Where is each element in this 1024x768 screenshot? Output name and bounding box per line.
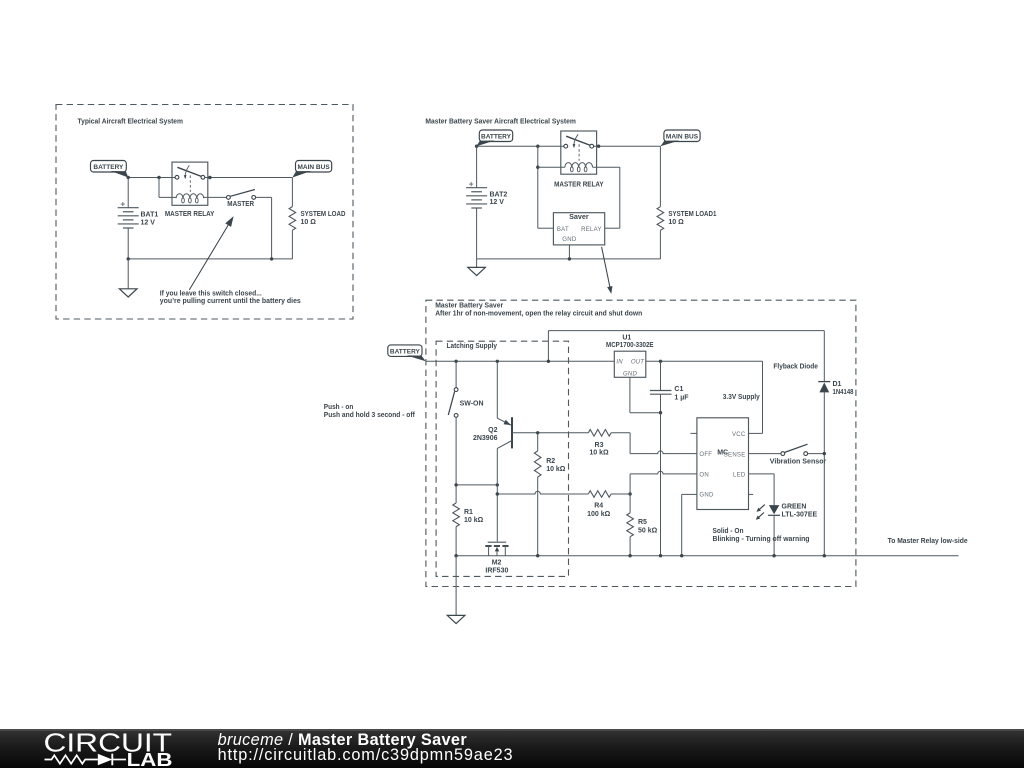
svg-text:MASTER RELAY: MASTER RELAY — [554, 181, 604, 188]
svg-text:10 kΩ: 10 kΩ — [546, 466, 566, 473]
svg-text:LED: LED — [733, 472, 746, 478]
svg-text:GREEN: GREEN — [782, 503, 807, 510]
svg-text:Push and hold 3 second - off: Push and hold 3 second - off — [324, 412, 416, 419]
svg-text:Latching Supply: Latching Supply — [447, 343, 498, 350]
svg-text:R4: R4 — [594, 503, 603, 510]
svg-text:MASTER RELAY: MASTER RELAY — [165, 211, 215, 218]
svg-text:SYSTEM LOAD1: SYSTEM LOAD1 — [668, 211, 716, 218]
svg-text:Typical Aircraft Electrical Sy: Typical Aircraft Electrical System — [78, 119, 184, 126]
svg-text:you’re pulling current until t: you’re pulling current until the battery… — [160, 298, 301, 305]
svg-text:50 kΩ: 50 kΩ — [638, 528, 658, 535]
svg-text:10 Ω: 10 Ω — [301, 219, 317, 226]
svg-text:12 V: 12 V — [141, 220, 156, 227]
svg-text:BATTERY: BATTERY — [481, 134, 512, 141]
svg-text:IN: IN — [616, 359, 623, 365]
svg-text:R2: R2 — [546, 458, 555, 465]
svg-text:After 1hr of non-movement, ope: After 1hr of non-movement, open the rela… — [435, 311, 642, 318]
svg-text:BATTERY: BATTERY — [390, 349, 421, 356]
svg-text:M2: M2 — [492, 560, 502, 567]
svg-text:Vibration Sensor: Vibration Sensor — [770, 459, 827, 466]
svg-text:Push - on: Push - on — [324, 404, 354, 411]
svg-text:1N4148: 1N4148 — [833, 389, 854, 396]
svg-text:3.3V Supply: 3.3V Supply — [723, 394, 760, 401]
svg-text:GND: GND — [699, 493, 714, 499]
svg-text:10 kΩ: 10 kΩ — [464, 517, 484, 524]
svg-text:OUT: OUT — [631, 359, 645, 365]
svg-text:BAT1: BAT1 — [141, 212, 159, 219]
svg-text:R1: R1 — [464, 509, 473, 516]
svg-text:RELAY: RELAY — [581, 227, 602, 233]
svg-text:Q2: Q2 — [488, 427, 497, 434]
svg-text:If you leave this switch close: If you leave this switch closed... — [160, 290, 262, 297]
svg-text:U1: U1 — [622, 334, 631, 341]
svg-text:R5: R5 — [638, 519, 647, 526]
svg-text:OFF: OFF — [699, 452, 712, 458]
svg-text:IRF530: IRF530 — [485, 567, 508, 574]
svg-text:D1: D1 — [833, 381, 842, 388]
svg-text:Saver: Saver — [569, 212, 589, 221]
svg-text:BAT2: BAT2 — [490, 191, 508, 198]
svg-text:ON: ON — [699, 472, 709, 478]
svg-text:MAIN BUS: MAIN BUS — [666, 134, 699, 141]
svg-text:Master Battery Saver: Master Battery Saver — [435, 303, 503, 310]
svg-text:10 Ω: 10 Ω — [668, 219, 684, 226]
svg-text:Master Battery Saver Aircraft: Master Battery Saver Aircraft Electrical… — [425, 118, 576, 125]
svg-text:SW-ON: SW-ON — [460, 400, 484, 407]
svg-text:10 kΩ: 10 kΩ — [589, 450, 609, 457]
svg-text:12 V: 12 V — [490, 199, 505, 206]
svg-text:100 kΩ: 100 kΩ — [587, 511, 611, 518]
svg-text:To Master Relay low-side: To Master Relay low-side — [888, 538, 968, 545]
svg-text:SYSTEM LOAD: SYSTEM LOAD — [301, 211, 346, 218]
svg-text:LAB: LAB — [127, 750, 173, 768]
svg-text:GND: GND — [623, 372, 637, 378]
svg-text:MCP1700-3302E: MCP1700-3302E — [606, 342, 654, 349]
svg-text:BAT: BAT — [557, 227, 569, 233]
svg-text:MAIN BUS: MAIN BUS — [298, 164, 331, 171]
svg-text:LTL-307EE: LTL-307EE — [782, 511, 818, 518]
svg-text:http://circuitlab.com/c39dpmn5: http://circuitlab.com/c39dpmn59ae23 — [218, 746, 514, 764]
svg-text:GND: GND — [562, 237, 577, 243]
svg-text:2N3906: 2N3906 — [473, 435, 498, 442]
svg-text:R3: R3 — [595, 442, 604, 449]
svg-text:Flyback Diode: Flyback Diode — [773, 363, 818, 370]
svg-text:Blinking - Turning off warning: Blinking - Turning off warning — [713, 536, 810, 543]
svg-text:BATTERY: BATTERY — [93, 164, 124, 171]
svg-text:1 µF: 1 µF — [674, 394, 689, 401]
svg-text:MASTER: MASTER — [227, 201, 254, 208]
svg-text:Solid - On: Solid - On — [713, 528, 744, 535]
svg-text:C1: C1 — [674, 386, 683, 393]
svg-text:SENSE: SENSE — [724, 452, 746, 458]
svg-text:VCC: VCC — [732, 432, 746, 438]
